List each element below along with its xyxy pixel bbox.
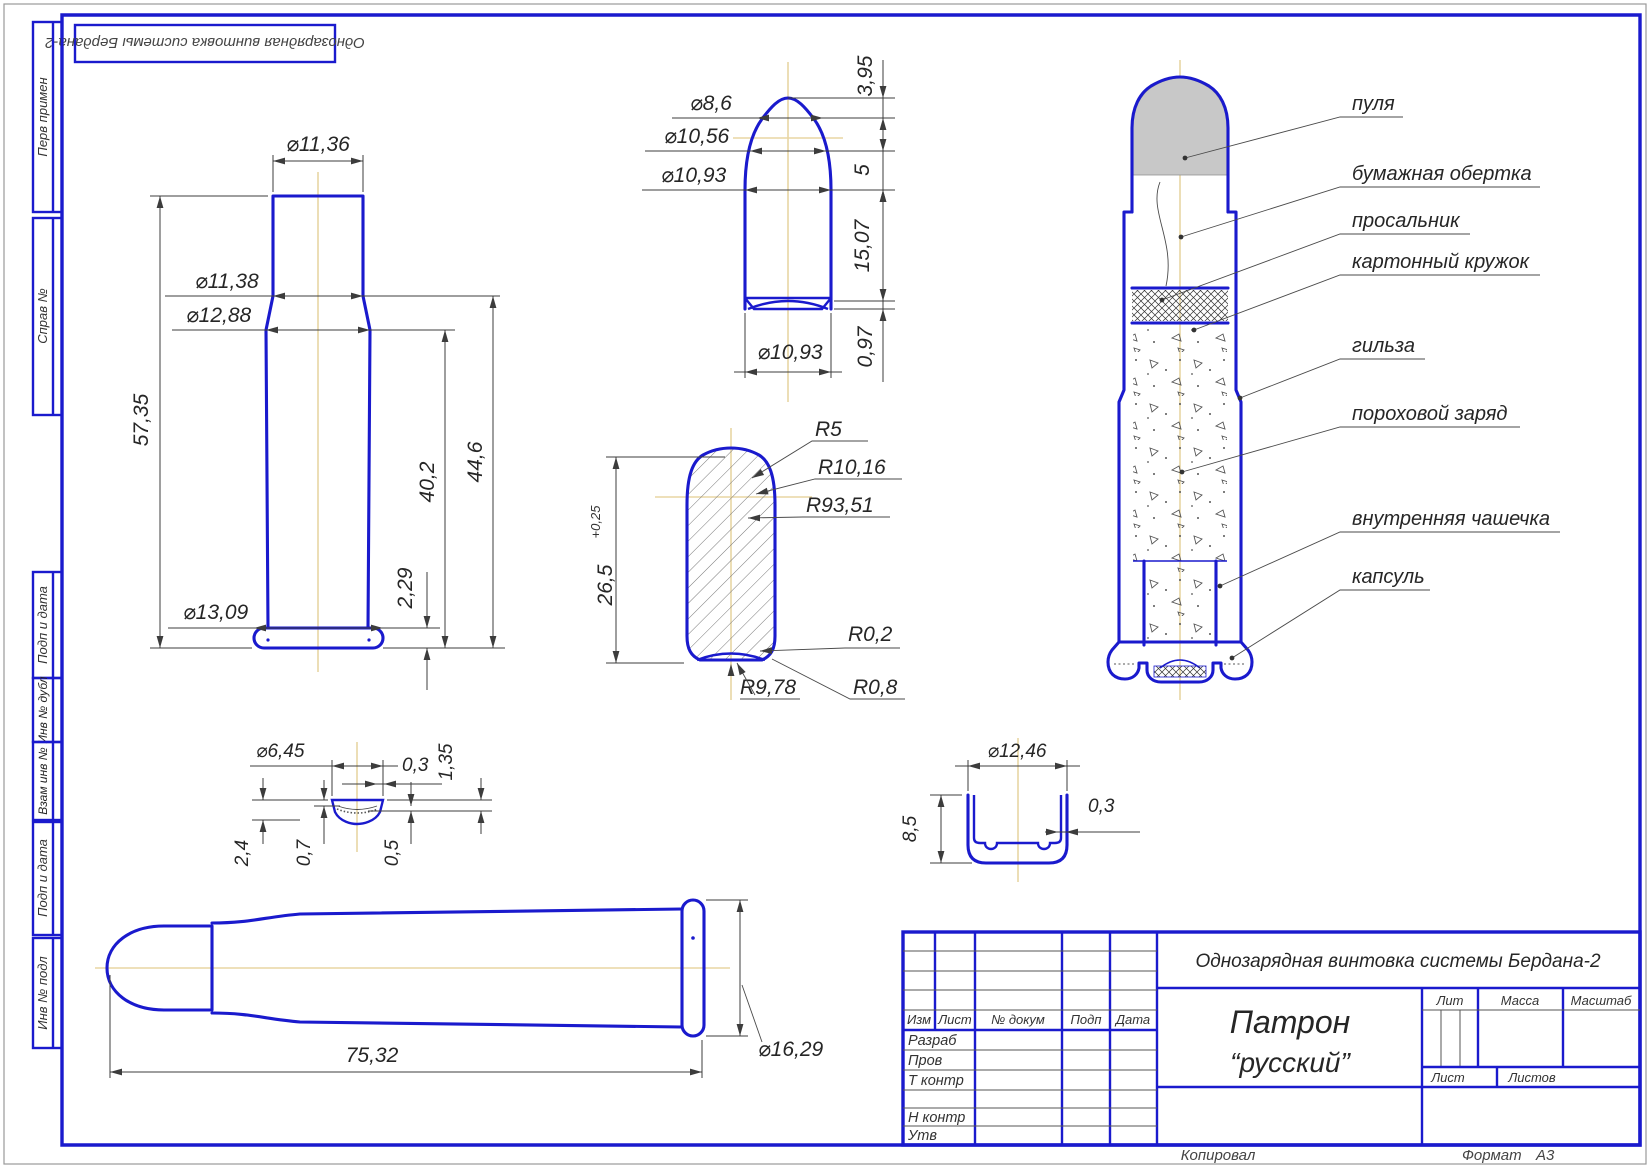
dim-profile-d1: ⌀16,29 xyxy=(758,1038,824,1061)
top-stamp-text: Однозарядная винтовка системы Бердана-2 xyxy=(44,34,364,51)
dim-bullet-h2: 5 xyxy=(851,164,874,176)
dim-section-h: 26,5 xyxy=(594,564,617,606)
dim-case-d4: ⌀13,09 xyxy=(183,601,249,624)
dim-case-h2: 40,2 xyxy=(416,461,439,502)
callout-case: гильза xyxy=(1352,335,1415,357)
sign-razrab: Разраб xyxy=(908,1033,957,1049)
format-value: А3 xyxy=(1535,1147,1555,1164)
grease-wad-hatch xyxy=(1132,290,1228,321)
dim-cap-w1: 0,3 xyxy=(402,755,429,776)
margin-label-podp-data-2: Подп и дата xyxy=(35,839,50,917)
dim-bullet-h1: 3,95 xyxy=(854,55,877,96)
section-hatch-fill xyxy=(687,448,775,660)
dim-section-r3: R93,51 xyxy=(806,494,874,517)
callout-cardboard-disc: картонный кружок xyxy=(1352,251,1531,273)
margin-label-perv-primen: Перв примен xyxy=(35,77,50,156)
sign-tkontr: Т контр xyxy=(908,1073,964,1089)
dim-cap-h4: 0,5 xyxy=(382,839,403,866)
dim-section-r2: R10,16 xyxy=(818,456,886,479)
callout-powder-charge: пороховой заряд xyxy=(1352,403,1507,425)
callout-inner-cup: внутренняя чашечка xyxy=(1352,508,1550,530)
rev-header-dokum: № докум xyxy=(991,1012,1045,1027)
dim-case-d1: ⌀11,36 xyxy=(286,133,350,156)
dim-cup-d1: ⌀12,46 xyxy=(988,741,1047,762)
dim-cup-w1: 0,3 xyxy=(1088,796,1115,817)
margin-label-vzam-inv: Взам инв № xyxy=(36,747,50,815)
dim-bullet-d4: ⌀10,93 xyxy=(757,341,823,364)
margin-label-sprav-no: Справ № xyxy=(35,288,50,343)
drawing-canvas: Однозарядная винтовка системы Бердана-2 … xyxy=(0,0,1650,1168)
dim-bullet-d3: ⌀10,93 xyxy=(661,164,727,187)
drawing-sheet: Однозарядная винтовка системы Бердана-2 … xyxy=(0,0,1650,1168)
primer-compound xyxy=(1154,666,1206,677)
rev-header-izm: Изм xyxy=(907,1012,931,1027)
rev-header-podp: Подп xyxy=(1071,1012,1102,1027)
sign-prov: Пров xyxy=(908,1053,943,1069)
doc-title: Однозарядная винтовка системы Бердана-2 xyxy=(1195,951,1601,972)
dim-section-r1: R5 xyxy=(815,418,842,441)
callout-primer: капсуль xyxy=(1352,566,1425,588)
dim-cap-h3: 0,7 xyxy=(294,838,315,866)
scale-header: Масштаб xyxy=(1571,993,1632,1008)
copied-label: Копировал xyxy=(1181,1147,1256,1164)
mass-header: Масса xyxy=(1501,993,1539,1008)
sheets-header: Листов xyxy=(1507,1070,1556,1085)
dim-case-t1: 2,29 xyxy=(394,567,417,609)
powder-fill-lower xyxy=(1146,563,1214,643)
dim-bullet-h3: 15,07 xyxy=(851,218,874,272)
dim-section-r6: R0,8 xyxy=(853,676,898,699)
dim-section-r5: R9,78 xyxy=(740,676,796,699)
dim-case-d2: ⌀11,38 xyxy=(195,270,259,293)
sign-utv: Утв xyxy=(907,1128,937,1144)
callout-grease-wad: просальник xyxy=(1352,210,1461,232)
dim-bullet-d2: ⌀10,56 xyxy=(664,125,730,148)
dim-case-d3: ⌀12,88 xyxy=(186,304,252,327)
dim-bullet-h4: 0,97 xyxy=(854,325,877,367)
margin-label-inv-dubl: Инв № дубл xyxy=(36,676,50,743)
part-name-line1: Патрон xyxy=(1230,1004,1350,1040)
sign-nkontr: Н контр xyxy=(908,1110,965,1126)
callout-paper-wrap: бумажная обертка xyxy=(1352,163,1532,185)
dim-case-h1: 57,35 xyxy=(130,393,153,446)
dim-cap-h2: 2,4 xyxy=(232,840,253,867)
powder-fill xyxy=(1133,327,1227,561)
dim-profile-l1: 75,32 xyxy=(346,1044,399,1067)
sheet-header: Лист xyxy=(1430,1070,1465,1085)
bullet-lead-fill xyxy=(1133,78,1227,175)
format-label: Формат xyxy=(1462,1147,1522,1164)
margin-label-podp-data-1: Подп и дата xyxy=(35,586,50,664)
dim-cap-h1: 1,35 xyxy=(436,743,457,780)
lit-header: Лит xyxy=(1436,993,1464,1008)
dim-section-tol: +0,25 xyxy=(588,505,603,539)
rev-header-data: Дата xyxy=(1114,1012,1150,1027)
dim-case-h3: 44,6 xyxy=(464,441,487,482)
dim-bullet-d1: ⌀8,6 xyxy=(690,92,732,115)
callout-bullet: пуля xyxy=(1352,93,1395,115)
dim-cap-d1: ⌀6,45 xyxy=(256,741,305,762)
dim-cup-h1: 8,5 xyxy=(900,815,921,842)
part-name-line2: “русский” xyxy=(1230,1047,1351,1078)
rev-header-list: Лист xyxy=(937,1012,972,1027)
margin-label-inv-podl: Инв № подл xyxy=(35,956,50,1030)
dim-section-r4: R0,2 xyxy=(848,623,893,646)
